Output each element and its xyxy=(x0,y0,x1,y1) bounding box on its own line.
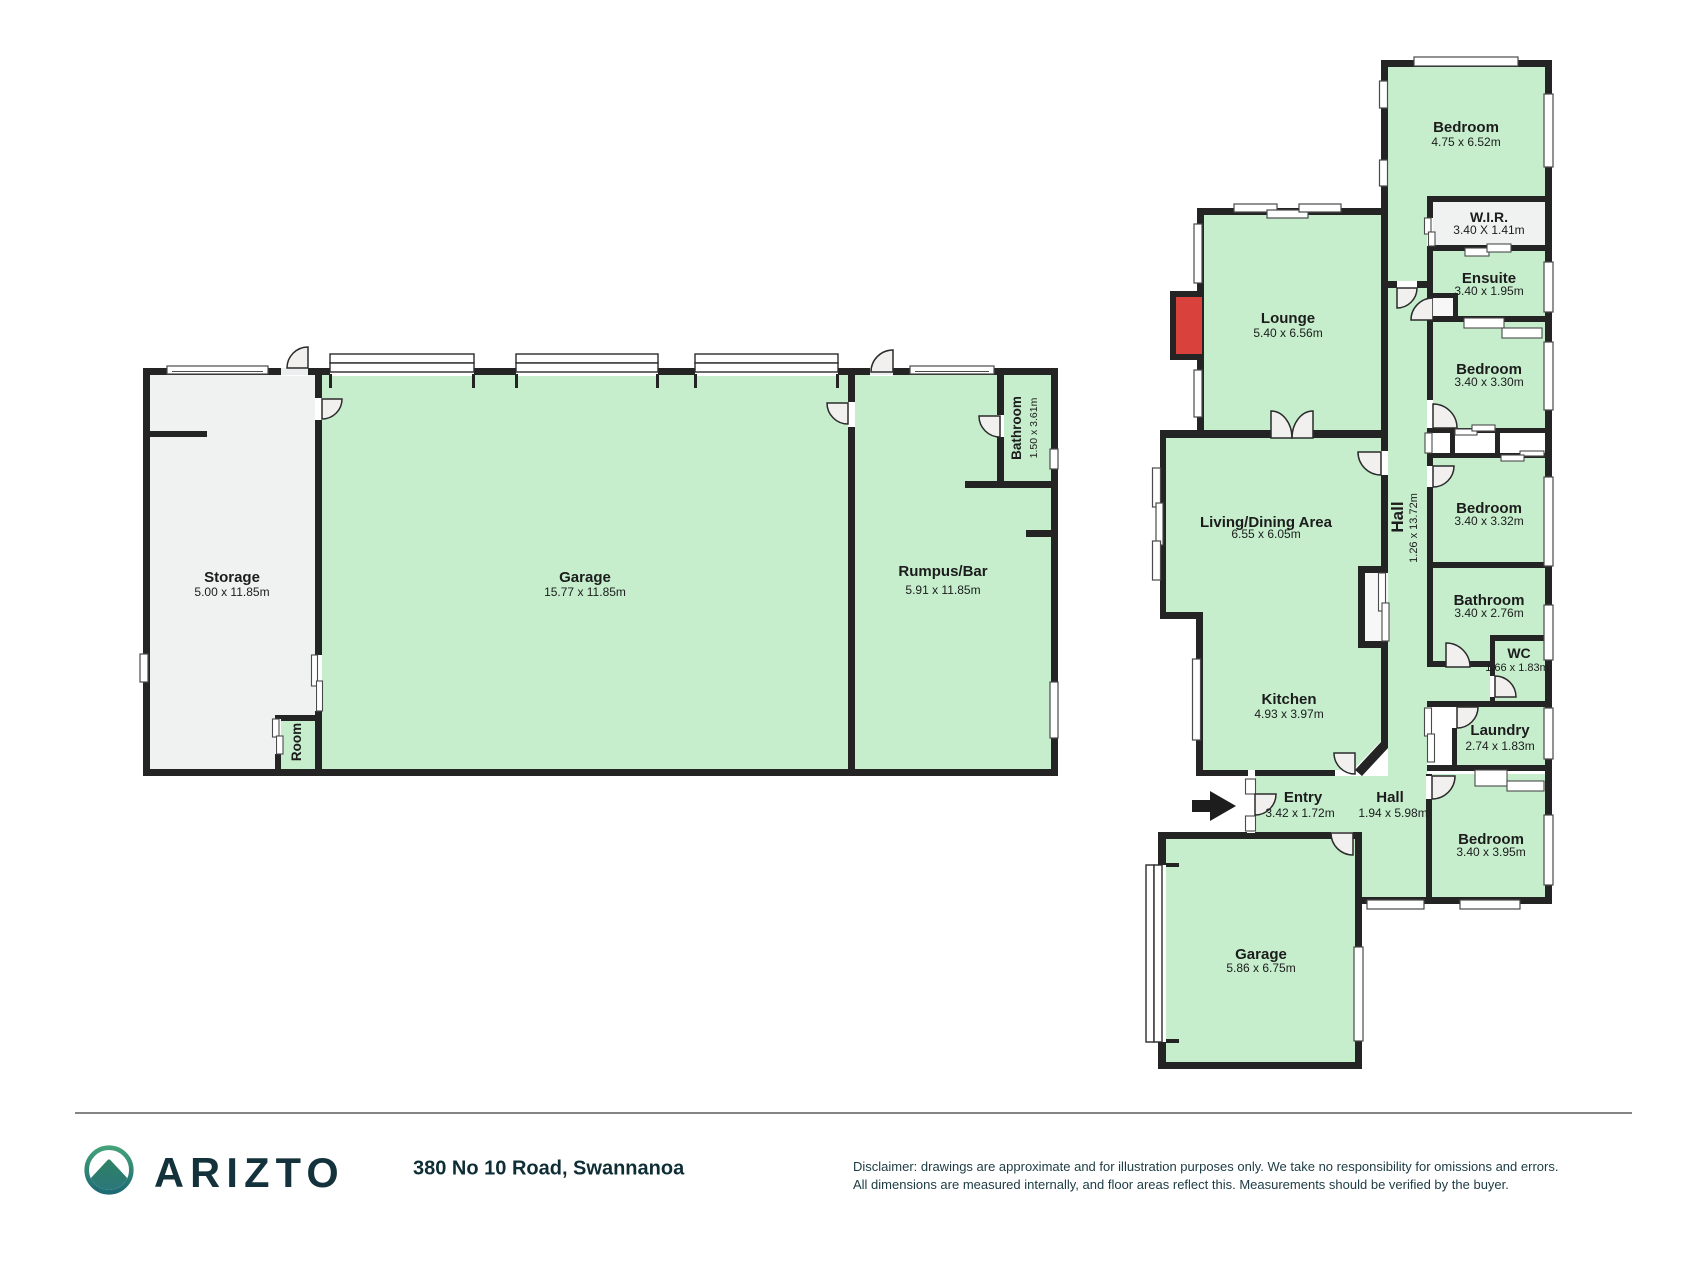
svg-text:Bedroom: Bedroom xyxy=(1433,119,1499,136)
svg-text:All dimensions are measured in: All dimensions are measured internally, … xyxy=(853,1177,1509,1192)
svg-text:Storage: Storage xyxy=(204,569,260,586)
svg-text:3.40 x 1.95m: 3.40 x 1.95m xyxy=(1454,284,1523,298)
svg-text:Rumpus/Bar: Rumpus/Bar xyxy=(898,563,987,580)
svg-text:4.93 x 3.97m: 4.93 x 3.97m xyxy=(1254,707,1323,721)
svg-text:4.75 x 6.52m: 4.75 x 6.52m xyxy=(1431,135,1500,149)
svg-text:ARIZTO: ARIZTO xyxy=(154,1149,345,1196)
svg-text:Laundry: Laundry xyxy=(1470,722,1530,739)
svg-text:Bathroom: Bathroom xyxy=(1009,396,1024,460)
svg-text:380 No 10 Road, Swannanoa: 380 No 10 Road, Swannanoa xyxy=(413,1158,685,1180)
svg-text:1.50 x 3.61m: 1.50 x 3.61m xyxy=(1028,397,1040,458)
svg-text:5.00 x 11.85m: 5.00 x 11.85m xyxy=(194,585,269,599)
svg-text:Hall: Hall xyxy=(1376,789,1404,806)
svg-text:2.74 x 1.83m: 2.74 x 1.83m xyxy=(1465,739,1534,753)
svg-text:5.91 x 11.85m: 5.91 x 11.85m xyxy=(905,583,980,597)
svg-text:5.40 x 6.56m: 5.40 x 6.56m xyxy=(1253,326,1322,340)
svg-text:Disclaimer: drawings are appro: Disclaimer: drawings are approximate and… xyxy=(853,1159,1558,1174)
svg-text:1.94 x 5.98m: 1.94 x 5.98m xyxy=(1358,806,1427,820)
svg-text:3.40 x 2.76m: 3.40 x 2.76m xyxy=(1454,606,1523,620)
svg-text:3.40 x 3.32m: 3.40 x 3.32m xyxy=(1454,514,1523,528)
svg-text:WC: WC xyxy=(1507,645,1530,661)
svg-text:1.26 x 13.72m: 1.26 x 13.72m xyxy=(1408,493,1420,563)
svg-text:3.40 x 3.30m: 3.40 x 3.30m xyxy=(1454,375,1523,389)
svg-text:Hall: Hall xyxy=(1388,501,1407,532)
svg-text:Kitchen: Kitchen xyxy=(1261,691,1316,708)
svg-text:Entry: Entry xyxy=(1284,789,1323,806)
svg-text:3.40 x 3.95m: 3.40 x 3.95m xyxy=(1456,845,1525,859)
svg-text:15.77 x 11.85m: 15.77 x 11.85m xyxy=(544,585,626,599)
svg-text:3.42 x 1.72m: 3.42 x 1.72m xyxy=(1265,806,1334,820)
svg-text:1.66 x 1.83m: 1.66 x 1.83m xyxy=(1485,662,1549,674)
svg-text:5.86 x 6.75m: 5.86 x 6.75m xyxy=(1226,961,1295,975)
svg-text:Room: Room xyxy=(289,723,304,761)
svg-text:3.40 X 1.41m: 3.40 X 1.41m xyxy=(1453,223,1524,237)
svg-text:Garage: Garage xyxy=(559,569,611,586)
svg-text:6.55 x 6.05m: 6.55 x 6.05m xyxy=(1231,527,1300,541)
svg-text:Lounge: Lounge xyxy=(1261,310,1315,327)
